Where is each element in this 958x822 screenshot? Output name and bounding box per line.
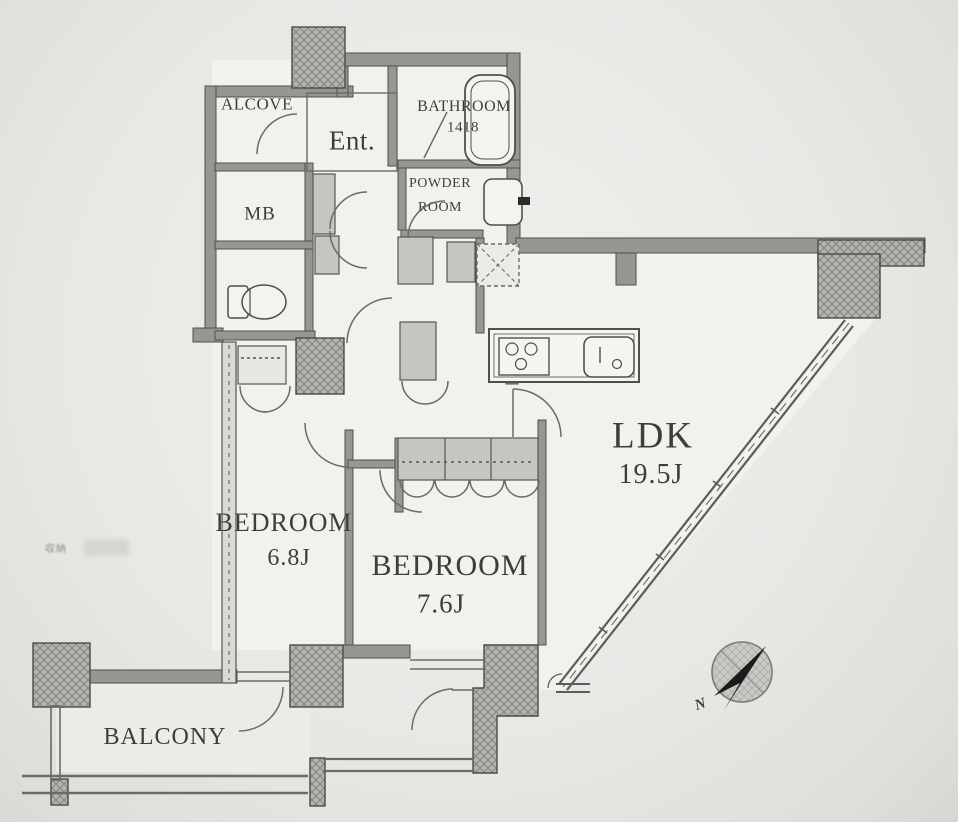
- bedroom-center-area: 7.6J: [417, 591, 465, 618]
- column-top-left: [292, 27, 345, 88]
- balcony-door-right: [412, 689, 453, 730]
- appliance-space: [477, 244, 519, 286]
- compass-icon: [712, 642, 772, 710]
- room-label-powder-line1: POWDER: [409, 177, 471, 191]
- washbasin: [484, 179, 530, 225]
- kitchen-counter: [489, 329, 639, 382]
- room-label-balcony: BALCONY: [103, 725, 226, 749]
- room-label-alcove: ALCOVE: [221, 96, 293, 113]
- column-interior: [296, 338, 344, 394]
- column-top-right: [818, 254, 880, 318]
- room-label-bedroom-center: BEDROOM: [371, 551, 528, 581]
- room-label-bedroom-left: BEDROOM: [215, 510, 352, 536]
- room-label-ldk: LDK: [612, 418, 694, 455]
- column-bottom-middle: [290, 645, 343, 707]
- room-label-meter-box: MB: [244, 205, 276, 224]
- bedroom-left-area: 6.8J: [267, 546, 310, 570]
- room-label-bathroom: BATHROOM: [417, 99, 511, 115]
- toilet: [228, 285, 286, 319]
- ldk-area: 19.5J: [619, 461, 684, 489]
- faint-watermark-text: 収納: [45, 540, 67, 555]
- room-label-powder-line2: ROOM: [418, 201, 462, 215]
- column-balcony-left: [33, 643, 90, 707]
- floor-plan-drawing: [0, 0, 958, 822]
- balcony-post-right: [310, 758, 325, 806]
- faint-watermark-box: [84, 539, 129, 556]
- floor-plan: ALCOVE Ent. BATHROOM 1418 POWDER ROOM MB…: [0, 0, 958, 822]
- bathroom-size-code: 1418: [447, 121, 479, 136]
- room-label-entrance: Ent.: [329, 128, 375, 155]
- column-bottom-right: [473, 645, 538, 773]
